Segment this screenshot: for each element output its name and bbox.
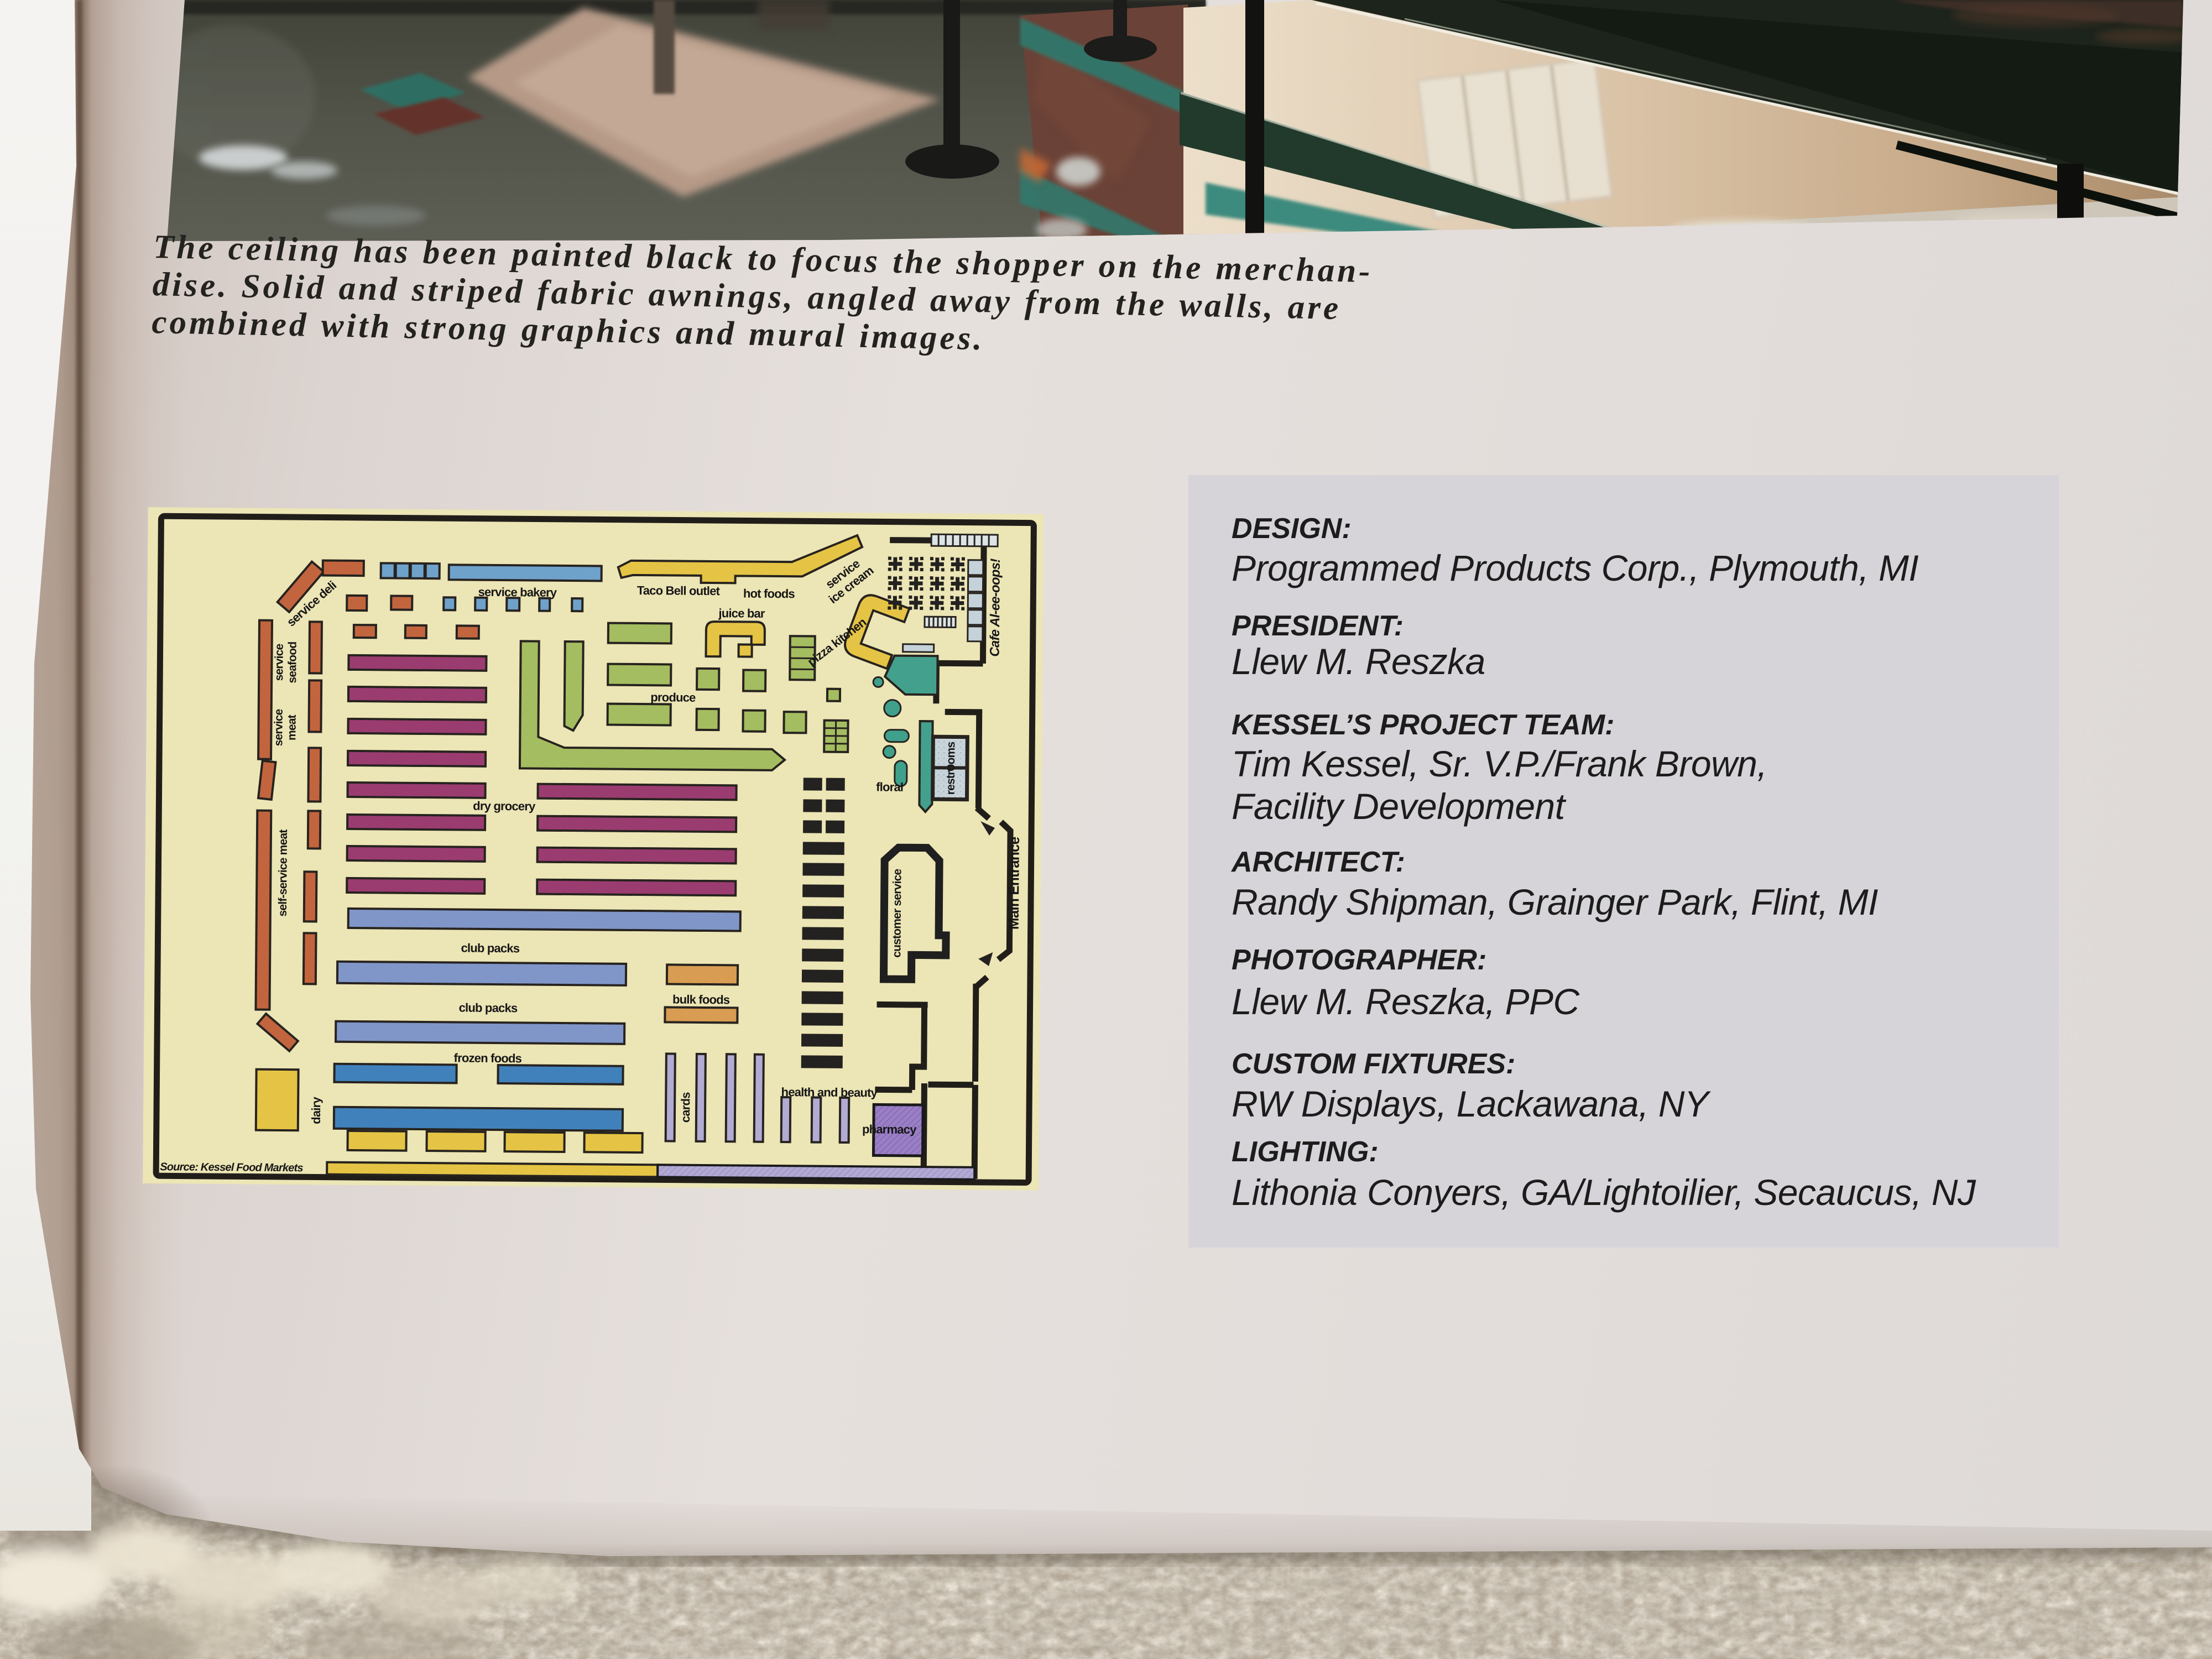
- svg-text:Main Entrance: Main Entrance: [1005, 837, 1022, 930]
- svg-text:customer service: customer service: [890, 869, 904, 958]
- svg-text:club packs: club packs: [461, 941, 519, 956]
- svg-text:hot foods: hot foods: [743, 586, 795, 601]
- svg-text:produce: produce: [650, 690, 696, 705]
- svg-text:floral: floral: [876, 780, 903, 794]
- svg-text:bulk foods: bulk foods: [672, 993, 730, 1007]
- svg-text:cards: cards: [679, 1092, 692, 1123]
- svg-text:frozen foods: frozen foods: [454, 1051, 522, 1065]
- svg-text:dairy: dairy: [309, 1097, 323, 1124]
- svg-text:club packs: club packs: [459, 1000, 518, 1015]
- svg-text:Source: Kessel Food Markets: Source: Kessel Food Markets: [160, 1161, 303, 1174]
- svg-text:juice bar: juice bar: [718, 606, 765, 620]
- svg-text:pharmacy: pharmacy: [862, 1122, 917, 1136]
- svg-text:self-service meat: self-service meat: [276, 830, 290, 917]
- svg-text:serviceseafood: serviceseafood: [273, 641, 299, 683]
- svg-text:Cafe Al-ee-oops!: Cafe Al-ee-oops!: [988, 559, 1003, 657]
- svg-text:Taco Bell outlet: Taco Bell outlet: [637, 583, 721, 598]
- svg-text:dry grocery: dry grocery: [473, 799, 536, 813]
- svg-text:health and beauty: health and beauty: [781, 1085, 878, 1099]
- svg-text:restrooms: restrooms: [945, 742, 958, 795]
